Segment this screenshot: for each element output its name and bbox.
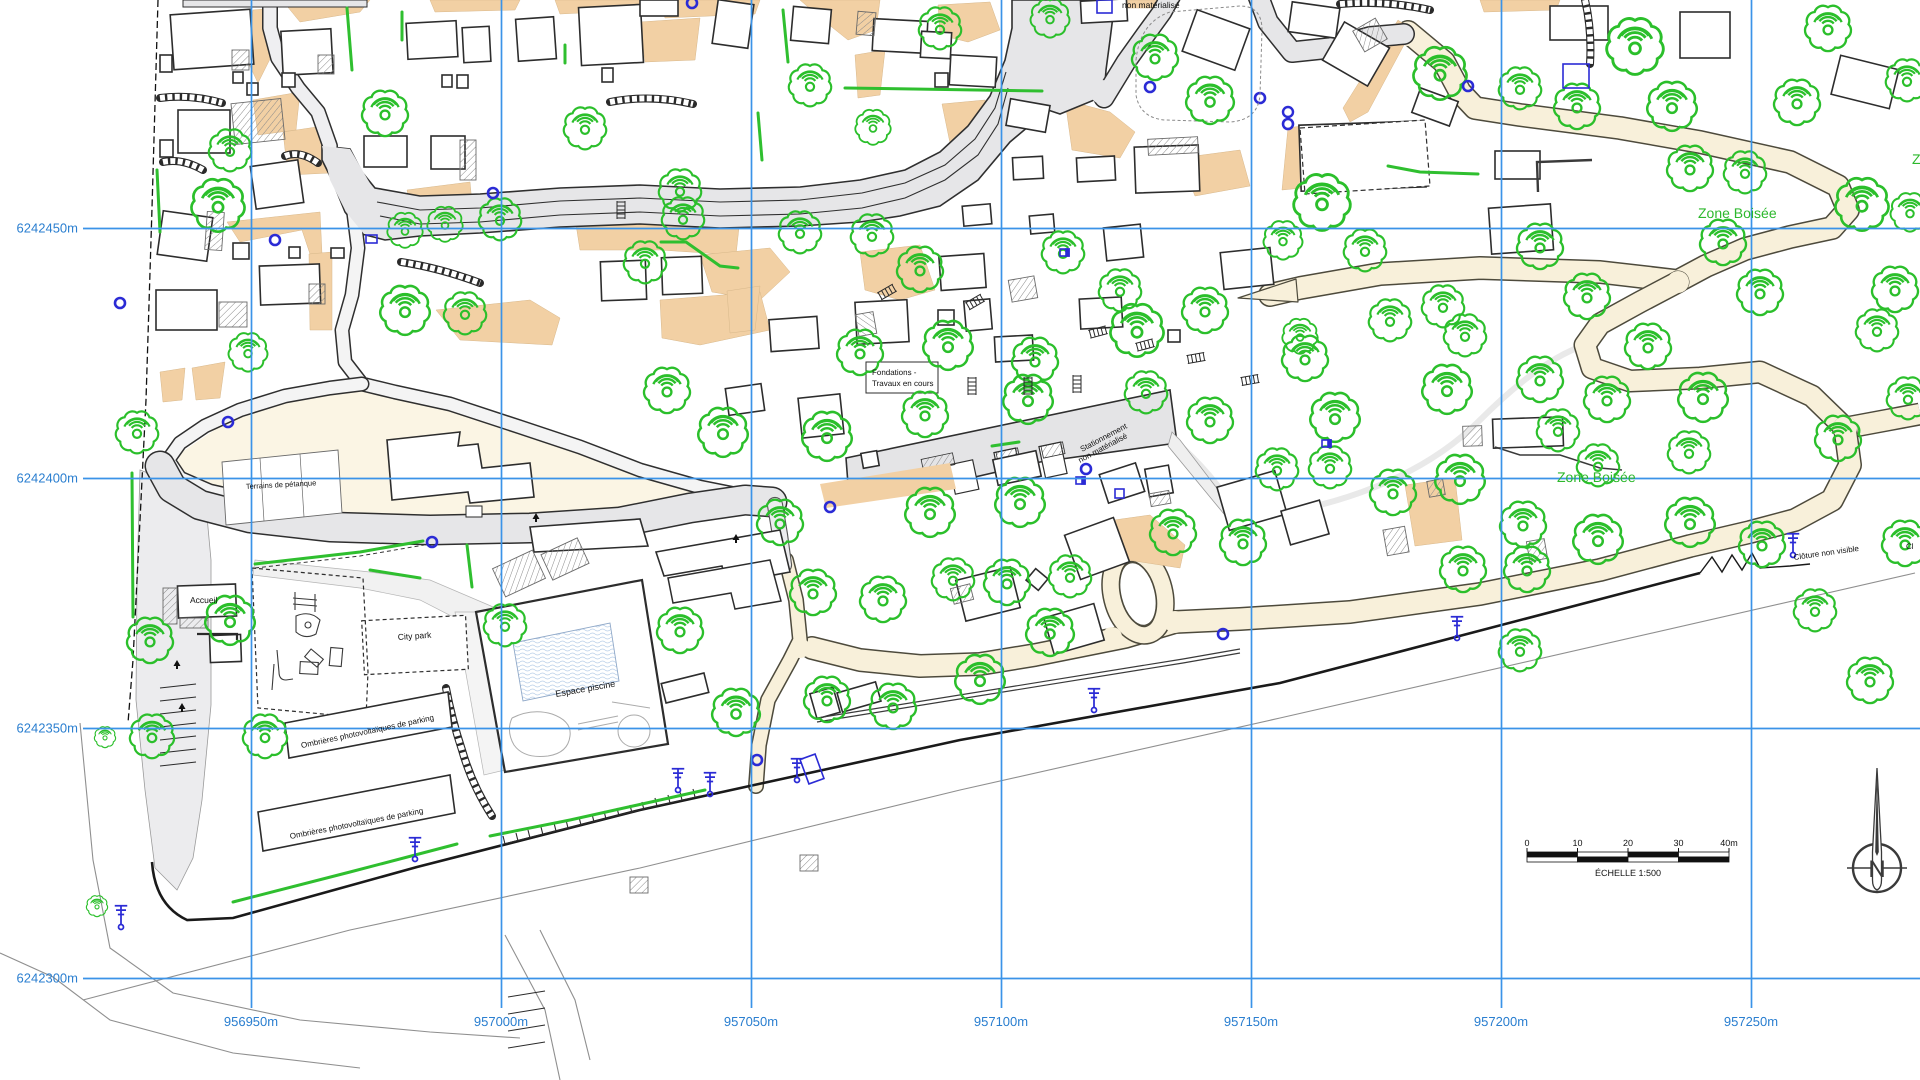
svg-text:30: 30	[1673, 838, 1683, 848]
svg-text:957000m: 957000m	[474, 1014, 528, 1029]
svg-text:6242400m: 6242400m	[17, 471, 78, 486]
svg-text:ÉCHELLE 1:500: ÉCHELLE 1:500	[1595, 868, 1661, 878]
svg-text:957100m: 957100m	[974, 1014, 1028, 1029]
svg-text:Fondations -: Fondations -	[872, 368, 917, 377]
svg-text:Zone Boisée: Zone Boisée	[1698, 205, 1777, 221]
svg-text:6242350m: 6242350m	[17, 721, 78, 736]
svg-text:Accueil: Accueil	[190, 595, 218, 605]
svg-text:6242450m: 6242450m	[17, 221, 78, 236]
svg-text:20: 20	[1623, 838, 1633, 848]
svg-text:957250m: 957250m	[1724, 1014, 1778, 1029]
svg-text:957050m: 957050m	[724, 1014, 778, 1029]
svg-text:non matérialisé: non matérialisé	[1122, 0, 1180, 10]
svg-text:6242300m: 6242300m	[17, 971, 78, 986]
svg-text:Zone Boisée: Zone Boisée	[1557, 469, 1636, 485]
svg-text:40m: 40m	[1720, 838, 1738, 848]
svg-text:N: N	[1868, 856, 1885, 883]
svg-text:957150m: 957150m	[1224, 1014, 1278, 1029]
svg-text:0: 0	[1524, 838, 1529, 848]
svg-text:Travaux en cours: Travaux en cours	[872, 379, 934, 388]
svg-text:Cl: Cl	[1906, 542, 1914, 551]
svg-text:10: 10	[1572, 838, 1582, 848]
svg-text:Z: Z	[1912, 151, 1920, 167]
svg-text:956950m: 956950m	[224, 1014, 278, 1029]
svg-text:957200m: 957200m	[1474, 1014, 1528, 1029]
